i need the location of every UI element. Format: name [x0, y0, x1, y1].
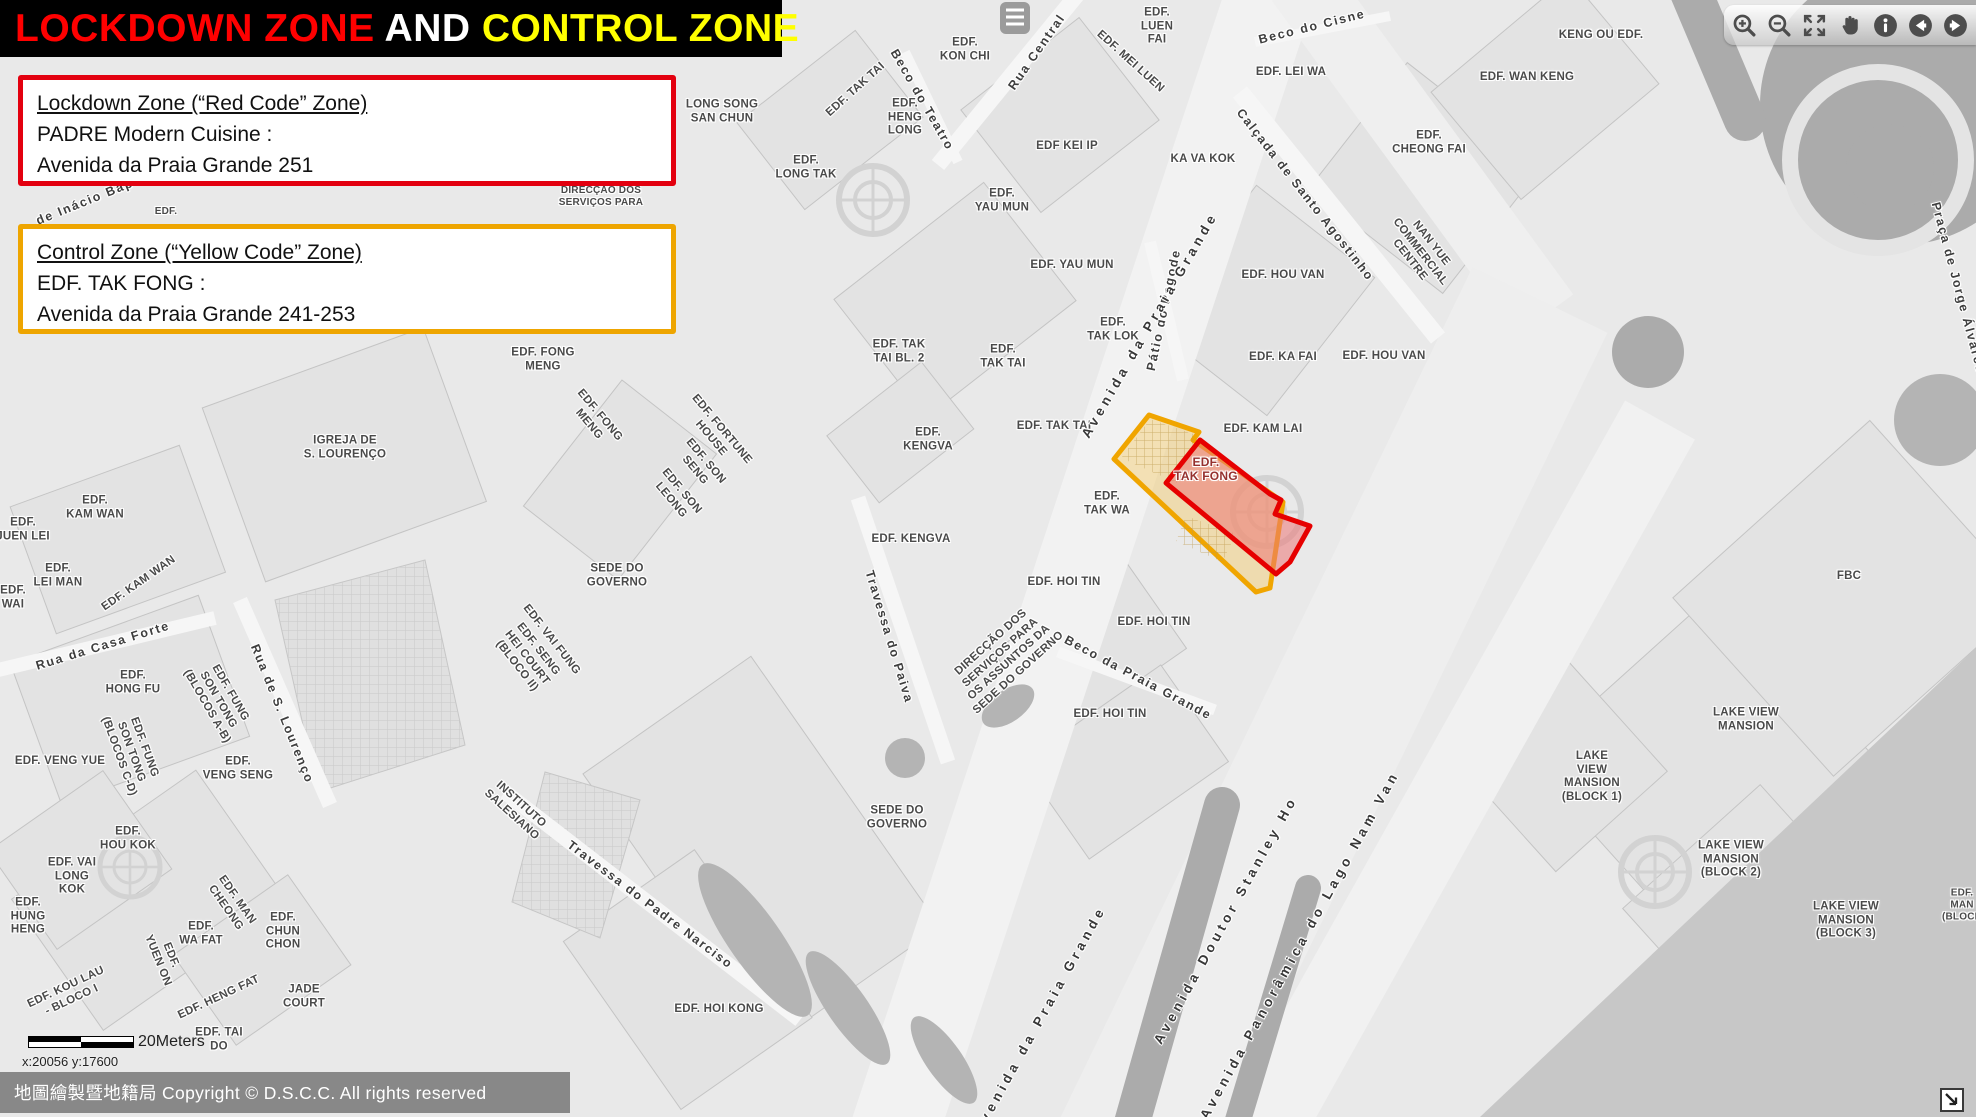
map-viewer: EDF. KON CHILONG SONG SAN CHUNEDF. HENG … — [0, 0, 1976, 1117]
copyright-text: 地圖繪製暨地籍局 Copyright © D.S.C.C. All rights… — [14, 1080, 487, 1105]
page-title: LOCKDOWN ZONE AND CONTROL ZONE — [0, 0, 782, 57]
scale-bar-label: 20Meters — [138, 1033, 205, 1051]
full-extent-icon — [1801, 12, 1828, 39]
diagonal-arrow-icon — [1942, 1090, 1962, 1110]
control-legend-line2: Avenida da Praia Grande 241-253 — [37, 299, 657, 330]
lockdown-zone-legend: Lockdown Zone (“Red Code” Zone) PADRE Mo… — [18, 75, 676, 186]
control-legend-line1: EDF. TAK FONG : — [37, 268, 657, 299]
info-icon — [1872, 12, 1899, 39]
control-zone-legend: Control Zone (“Yellow Code” Zone) EDF. T… — [18, 224, 676, 334]
zoom-in-icon — [1731, 12, 1758, 39]
scale-bar-graphic — [28, 1036, 134, 1048]
zoom-out-icon — [1766, 12, 1793, 39]
hatched-plaza — [275, 560, 640, 938]
title-control-text: CONTROL ZONE — [482, 7, 799, 51]
poi-marker-icon — [1000, 2, 1030, 34]
identify-button[interactable] — [1870, 10, 1900, 40]
full-extent-button[interactable] — [1800, 10, 1830, 40]
pan-hand-icon — [1837, 12, 1864, 39]
overview-map-toggle-button[interactable] — [1940, 1088, 1964, 1112]
lockdown-legend-line2: Avenida da Praia Grande 251 — [37, 150, 657, 181]
lockdown-legend-line1: PADRE Modern Cuisine : — [37, 119, 657, 150]
pan-button[interactable] — [1835, 10, 1865, 40]
control-legend-heading: Control Zone (“Yellow Code” Zone) — [37, 237, 657, 268]
scale-bar: 20Meters — [28, 1033, 205, 1051]
previous-extent-button[interactable] — [1906, 10, 1936, 40]
title-and-text: AND — [375, 7, 482, 51]
zoom-out-button[interactable] — [1765, 10, 1795, 40]
zoom-in-button[interactable] — [1729, 10, 1759, 40]
title-lockdown-text: LOCKDOWN ZONE — [15, 7, 375, 51]
arrow-right-icon — [1942, 12, 1969, 39]
copyright-bar: 地圖繪製暨地籍局 Copyright © D.S.C.C. All rights… — [0, 1072, 570, 1113]
arrow-left-icon — [1907, 12, 1934, 39]
next-extent-button[interactable] — [1941, 10, 1971, 40]
map-toolbar — [1724, 5, 1976, 45]
cursor-coordinates: x:20056 y:17600 — [22, 1054, 118, 1069]
lockdown-legend-heading: Lockdown Zone (“Red Code” Zone) — [37, 88, 657, 119]
